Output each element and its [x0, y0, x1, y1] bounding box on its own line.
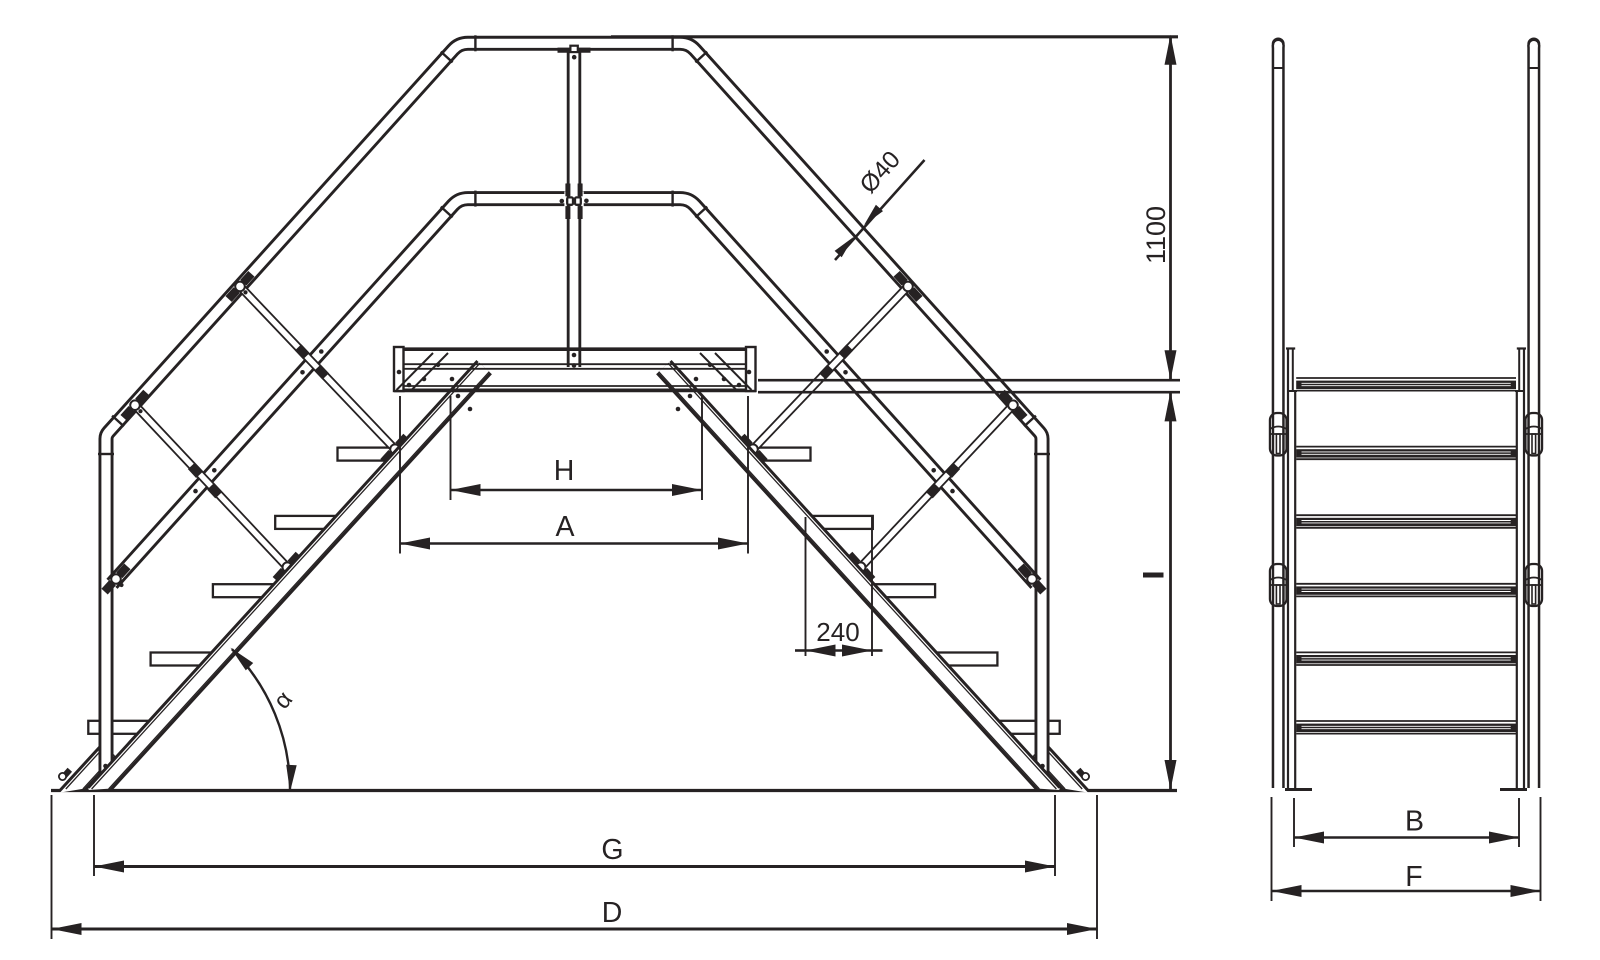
svg-text:B: B — [1405, 806, 1424, 838]
svg-text:G: G — [601, 834, 623, 866]
svg-text:F: F — [1405, 861, 1422, 893]
svg-text:240: 240 — [816, 617, 859, 647]
svg-text:A: A — [555, 511, 574, 543]
svg-text:1100: 1100 — [1141, 206, 1171, 264]
svg-text:H: H — [554, 455, 575, 487]
svg-text:D: D — [602, 897, 623, 929]
